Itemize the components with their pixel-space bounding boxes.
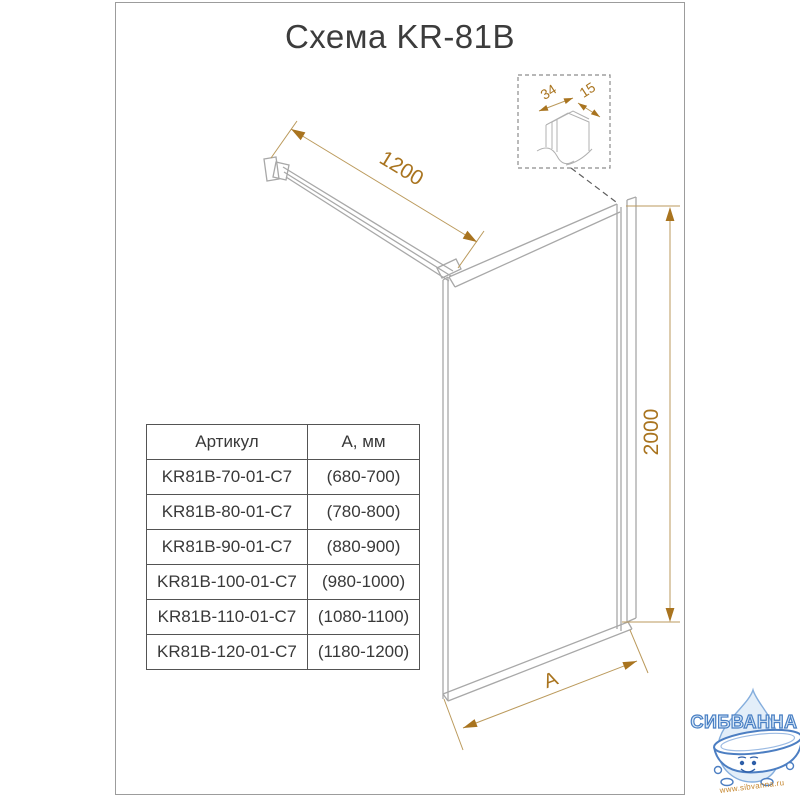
arrowhead-icon [591,109,600,117]
break-lines [537,148,592,165]
size-cell: (780-800) [307,495,419,530]
table-row: KR81B-110-01-C7 (1080-1100) [147,600,420,635]
article-cell: KR81B-80-01-C7 [147,495,308,530]
height-dimension: 2000 [622,206,680,622]
bottom-dimension-label: A [541,668,562,694]
article-cell: KR81B-110-01-C7 [147,600,308,635]
detail-thickness-label: 34 [537,81,559,103]
arrowhead-icon [666,207,675,221]
article-cell: KR81B-100-01-C7 [147,565,308,600]
arrowhead-icon [666,608,675,622]
table-row: KR81B-90-01-C7 (880-900) [147,530,420,565]
support-bar [283,167,461,281]
detail-box [518,75,610,168]
arrowhead-icon [291,129,305,140]
size-cell: (880-900) [307,530,419,565]
column-header-article: Артикул [147,425,308,460]
height-dimension-label: 2000 [640,409,663,456]
profile-detail-inset: 34 15 [518,75,616,202]
leader-line [571,168,616,202]
technical-drawing: 1200 2000 A 34 15 [0,0,800,800]
column-header-size: А, мм [307,425,419,460]
size-cell: (1180-1200) [307,635,419,670]
article-cell: KR81B-120-01-C7 [147,635,308,670]
arrowhead-icon [564,98,574,104]
size-table: Артикул А, мм KR81B-70-01-C7 (680-700) K… [146,424,420,670]
detail-depth-label: 15 [576,79,598,101]
table-row: KR81B-80-01-C7 (780-800) [147,495,420,530]
width-dimension-label: 1200 [375,146,427,190]
article-cell: KR81B-70-01-C7 [147,460,308,495]
table-row: KR81B-70-01-C7 (680-700) [147,460,420,495]
size-cell: (1080-1100) [307,600,419,635]
glass-panel [443,204,632,701]
table-row: KR81B-120-01-C7 (1180-1200) [147,635,420,670]
size-cell: (980-1000) [307,565,419,600]
size-cell: (680-700) [307,460,419,495]
arrowhead-icon [463,231,477,242]
arrowhead-icon [622,661,637,670]
arrowhead-icon [578,103,587,111]
table-row: KR81B-100-01-C7 (980-1000) [147,565,420,600]
table-header-row: Артикул А, мм [147,425,420,460]
logo-brand-text: СИБВАННА [688,712,800,733]
profile-block [546,111,589,152]
width-dimension: 1200 [271,121,484,268]
wall-profile [627,197,636,622]
sibvanna-logo: СИБВАННА www.sibvanna.ru [686,676,800,800]
arrowhead-icon [539,105,549,111]
arrowhead-icon [463,719,478,728]
article-cell: KR81B-90-01-C7 [147,530,308,565]
